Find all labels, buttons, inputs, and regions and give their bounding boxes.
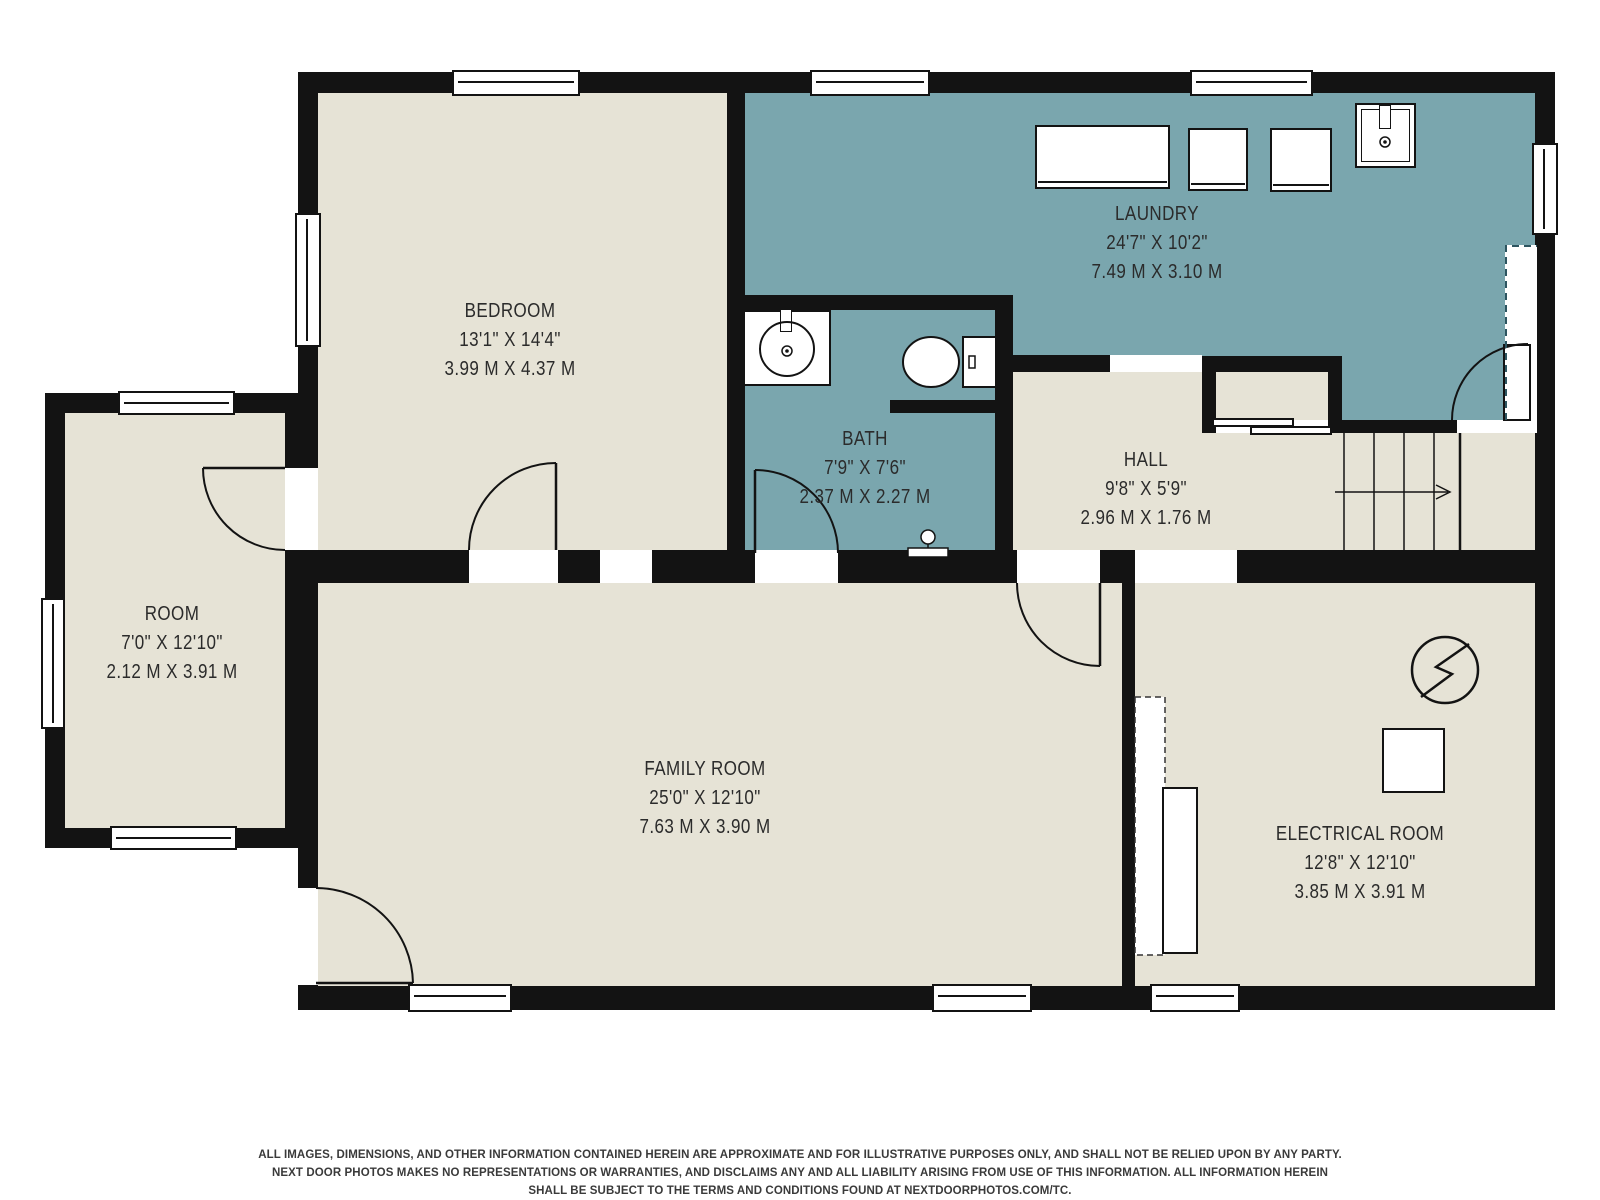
disclaimer-line-1: ALL IMAGES, DIMENSIONS, AND OTHER INFORM…: [0, 1146, 1600, 1164]
room-door-opening: [285, 468, 318, 550]
window-glass: [816, 81, 924, 83]
disclaimer-line-2: NEXT DOOR PHOTOS MAKES NO REPRESENTATION…: [0, 1164, 1600, 1182]
family-electrical-wall: [1122, 550, 1135, 988]
bedroom-window-left: [295, 213, 321, 347]
window-glass: [124, 402, 229, 404]
room-name: FAMILY ROOM: [578, 755, 833, 784]
window-glass: [458, 81, 574, 83]
room-name: HALL: [1019, 446, 1274, 475]
washer-door-line: [1191, 183, 1245, 185]
room-metric-dimensions: 2.37 M X 2.27 M: [738, 483, 993, 512]
room-label: ROOM 7'0" X 12'10" 2.12 M X 3.91 M: [45, 600, 300, 687]
bedroom-label: BEDROOM 13'1" X 14'4" 3.99 M X 4.37 M: [383, 297, 638, 384]
bath-sink-faucet: [780, 309, 792, 332]
utility-sink-faucet: [1379, 105, 1391, 129]
hall-wall-top: [1010, 355, 1110, 372]
closet-sliding-door-right: [1250, 426, 1332, 435]
bath-door-opening: [755, 550, 838, 583]
window-glass: [1156, 995, 1234, 997]
bedroom-door-opening: [469, 550, 558, 583]
stairs-wall-top: [1342, 420, 1457, 433]
window-glass: [1196, 81, 1307, 83]
passage-opening: [600, 550, 652, 583]
room-name: BATH: [738, 425, 993, 454]
window-glass: [414, 995, 506, 997]
room-metric-dimensions: 3.85 M X 3.91 M: [1233, 878, 1488, 907]
hall-label: HALL 9'8" X 5'9" 2.96 M X 1.76 M: [1019, 446, 1274, 533]
bedroom-window-top: [452, 70, 580, 96]
electrical-room-floor: [1135, 583, 1537, 986]
bath-wall-top: [727, 295, 1013, 310]
washer: [1188, 128, 1248, 191]
window-glass: [116, 837, 231, 839]
laundry-stairs-door-opening: [1457, 420, 1537, 433]
disclaimer: ALL IMAGES, DIMENSIONS, AND OTHER INFORM…: [0, 1146, 1600, 1200]
toilet-privacy-wall: [890, 400, 1013, 413]
dryer-door-line: [1273, 184, 1329, 186]
room-imperial-dimensions: 7'0" X 12'10": [45, 629, 300, 658]
family-room-label: FAMILY ROOM 25'0" X 12'10" 7.63 M X 3.90…: [578, 755, 833, 842]
room-window-bottom: [110, 826, 237, 850]
room-imperial-dimensions: 9'8" X 5'9": [1019, 475, 1274, 504]
laundry-hall-opening: [1110, 355, 1202, 372]
electrical-box: [1382, 728, 1445, 793]
room-metric-dimensions: 7.49 M X 3.10 M: [1030, 258, 1285, 287]
hall-family-door-opening: [1017, 550, 1100, 583]
family-left-door-opening: [296, 888, 318, 985]
room-imperial-dimensions: 24'7" X 10'2": [1030, 229, 1285, 258]
room-imperial-dimensions: 13'1" X 14'4": [383, 326, 638, 355]
room-name: ELECTRICAL ROOM: [1233, 820, 1488, 849]
electrical-room-label: ELECTRICAL ROOM 12'8" X 12'10" 3.85 M X …: [1233, 820, 1488, 907]
room-window-top: [118, 391, 235, 415]
laundry-floor-lower: [1013, 295, 1537, 356]
room-metric-dimensions: 7.63 M X 3.90 M: [578, 813, 833, 842]
laundry-label: LAUNDRY 24'7" X 10'2" 7.49 M X 3.10 M: [1030, 200, 1285, 287]
room-imperial-dimensions: 7'9" X 7'6": [738, 454, 993, 483]
closet-wall-top: [1202, 356, 1342, 372]
room-name: LAUNDRY: [1030, 200, 1285, 229]
closet-wall-right: [1328, 356, 1342, 433]
dryer: [1270, 128, 1332, 192]
room-name: ROOM: [45, 600, 300, 629]
family-window-bottom-left: [408, 984, 512, 1012]
hall-electrical-opening: [1135, 550, 1237, 583]
closet-floor: [1216, 372, 1328, 420]
counter-edge: [1038, 181, 1167, 183]
room-imperial-dimensions: 12'8" X 12'10": [1233, 849, 1488, 878]
laundry-counter: [1035, 125, 1170, 189]
window-glass: [938, 995, 1026, 997]
room-imperial-dimensions: 25'0" X 12'10": [578, 784, 833, 813]
bath-label: BATH 7'9" X 7'6" 2.37 M X 2.27 M: [738, 425, 993, 512]
laundry-window-right: [1190, 70, 1313, 96]
window-glass: [306, 219, 308, 341]
room-name: BEDROOM: [383, 297, 638, 326]
room-metric-dimensions: 2.96 M X 1.76 M: [1019, 504, 1274, 533]
disclaimer-line-3: SHALL BE SUBJECT TO THE TERMS AND CONDIT…: [0, 1182, 1600, 1200]
room-metric-dimensions: 2.12 M X 3.91 M: [45, 658, 300, 687]
laundry-nook: [1505, 245, 1537, 420]
electrical-window-bottom: [1150, 984, 1240, 1012]
bath-wall-right: [995, 295, 1013, 583]
window-glass: [1543, 149, 1545, 229]
room-metric-dimensions: 3.99 M X 4.37 M: [383, 355, 638, 384]
laundry-window-left: [810, 70, 930, 96]
laundry-window-east: [1532, 143, 1558, 235]
floor-plan: BEDROOM 13'1" X 14'4" 3.99 M X 4.37 M LA…: [0, 0, 1600, 1200]
family-window-bottom-right: [932, 984, 1032, 1012]
